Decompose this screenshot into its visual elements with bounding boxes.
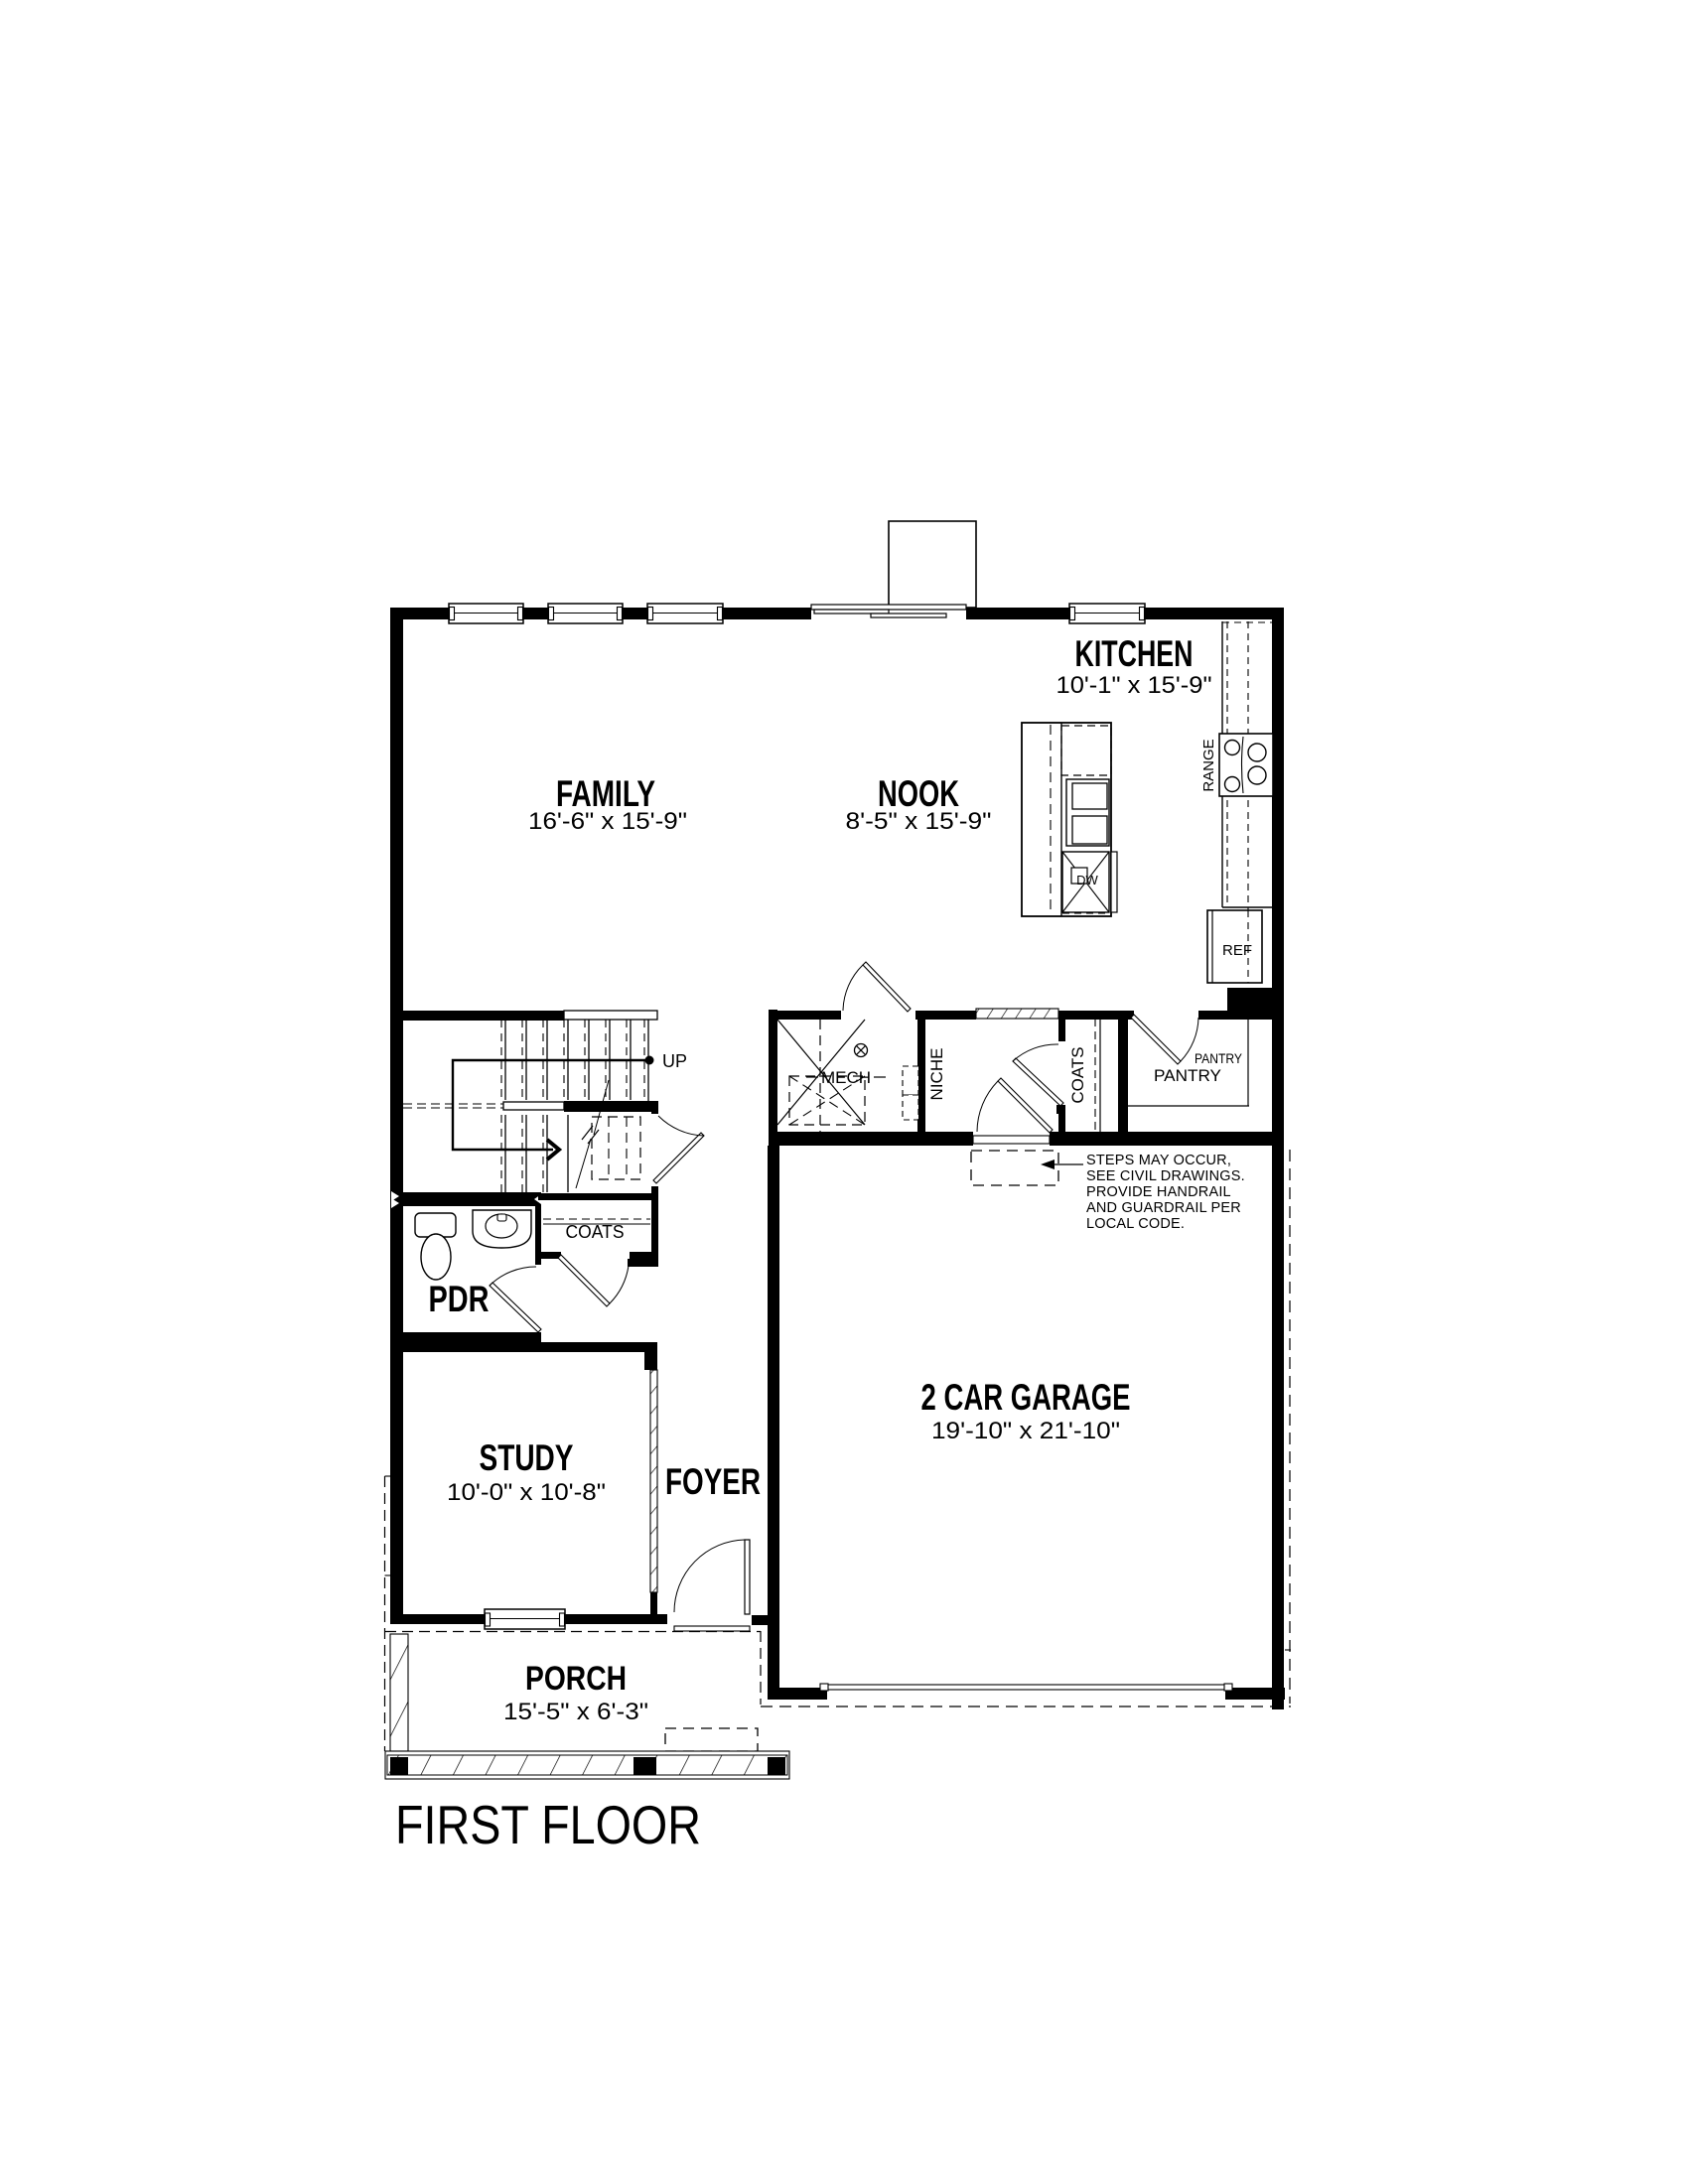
svg-text:10'-1" x 15'-9": 10'-1" x 15'-9" xyxy=(1056,672,1212,699)
svg-text:19'-10" x 21'-10": 19'-10" x 21'-10" xyxy=(931,1418,1120,1444)
svg-text:16'-6" x 15'-9": 16'-6" x 15'-9" xyxy=(528,808,687,835)
svg-text:AND GUARDRAIL PER: AND GUARDRAIL PER xyxy=(1086,1200,1241,1216)
svg-text:MECH: MECH xyxy=(821,1068,871,1087)
svg-text:2 CAR GARAGE: 2 CAR GARAGE xyxy=(921,1377,1131,1418)
svg-text:15'-5" x 6'-3": 15'-5" x 6'-3" xyxy=(503,1699,648,1725)
svg-text:STEPS MAY OCCUR,: STEPS MAY OCCUR, xyxy=(1086,1153,1231,1168)
svg-text:PANTRY: PANTRY xyxy=(1154,1066,1221,1085)
svg-text:10'-0" x 10'-8": 10'-0" x 10'-8" xyxy=(447,1479,606,1506)
svg-text:STUDY: STUDY xyxy=(480,1437,574,1478)
svg-text:PROVIDE HANDRAIL: PROVIDE HANDRAIL xyxy=(1086,1184,1231,1200)
svg-text:FOYER: FOYER xyxy=(665,1461,761,1502)
svg-text:FIRST FLOOR: FIRST FLOOR xyxy=(395,1794,701,1855)
svg-text:COATS: COATS xyxy=(566,1222,625,1242)
svg-text:NICHE: NICHE xyxy=(927,1048,946,1101)
svg-text:LOCAL CODE.: LOCAL CODE. xyxy=(1086,1216,1185,1232)
svg-text:COATS: COATS xyxy=(1068,1046,1087,1103)
svg-text:DW: DW xyxy=(1076,873,1098,887)
svg-text:PDR: PDR xyxy=(429,1279,490,1319)
svg-text:PORCH: PORCH xyxy=(525,1660,627,1698)
svg-text:SEE CIVIL DRAWINGS.: SEE CIVIL DRAWINGS. xyxy=(1086,1168,1245,1184)
svg-text:KITCHEN: KITCHEN xyxy=(1075,633,1194,674)
svg-text:PANTRY: PANTRY xyxy=(1195,1050,1243,1066)
svg-text:8'-5" x 15'-9": 8'-5" x 15'-9" xyxy=(846,808,992,835)
svg-text:UP: UP xyxy=(662,1051,687,1071)
svg-text:RANGE: RANGE xyxy=(1200,739,1217,791)
